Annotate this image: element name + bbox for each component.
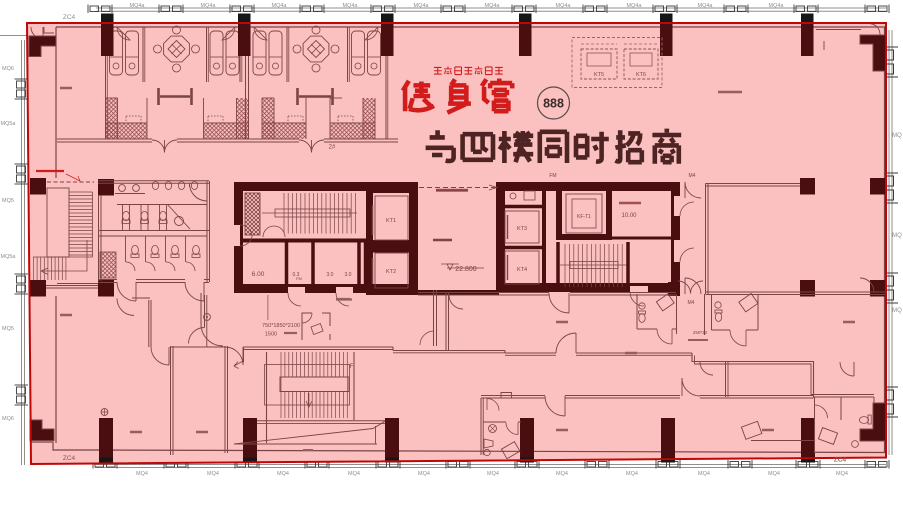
svg-text:MQ4a: MQ4a	[201, 3, 217, 9]
svg-text:MQ5a: MQ5a	[1, 254, 17, 260]
svg-text:MQ6: MQ6	[2, 66, 14, 72]
svg-text:ZC4: ZC4	[63, 455, 76, 462]
svg-text:MQ4: MQ4	[487, 471, 499, 477]
svg-text:MQ: MQ	[892, 308, 902, 314]
svg-text:MQ4: MQ4	[698, 471, 710, 477]
svg-text:3.0: 3.0	[327, 272, 334, 278]
svg-text:MQ4a: MQ4a	[272, 3, 288, 9]
svg-text:MQ4a: MQ4a	[343, 3, 359, 9]
svg-text:MQ4: MQ4	[418, 471, 430, 477]
svg-text:M4: M4	[689, 173, 696, 179]
svg-text:ZC4: ZC4	[834, 457, 847, 464]
svg-text:MQ4a: MQ4a	[556, 3, 572, 9]
svg-text:F: F	[350, 364, 354, 370]
svg-text:KT2: KT2	[386, 269, 396, 275]
svg-text:MQ4: MQ4	[207, 471, 219, 477]
svg-text:MQ4: MQ4	[348, 471, 360, 477]
svg-text:MQ5: MQ5	[2, 198, 14, 204]
svg-text:KT6: KT6	[636, 72, 646, 78]
svg-text:FM: FM	[296, 276, 302, 281]
svg-text:250*20: 250*20	[693, 330, 708, 335]
svg-text:KT1: KT1	[386, 218, 396, 224]
svg-text:MQ4: MQ4	[556, 471, 568, 477]
svg-text:MQ4: MQ4	[836, 471, 848, 477]
svg-text:3.0: 3.0	[345, 272, 352, 278]
svg-text:750*1850*2100: 750*1850*2100	[262, 323, 300, 329]
svg-text:6.00: 6.00	[252, 271, 265, 278]
svg-text:MQ4a: MQ4a	[698, 3, 714, 9]
svg-text:1500: 1500	[265, 332, 277, 338]
svg-text:KT4: KT4	[517, 267, 527, 273]
svg-text:888: 888	[543, 97, 564, 111]
svg-text:ZC4: ZC4	[63, 14, 76, 21]
svg-text:MQ4a: MQ4a	[485, 3, 501, 9]
svg-text:2#: 2#	[329, 145, 336, 151]
svg-text:FM: FM	[549, 173, 556, 179]
svg-text:MQ4a: MQ4a	[769, 3, 785, 9]
svg-text:KT5: KT5	[594, 72, 604, 78]
svg-text:MQ: MQ	[892, 233, 902, 239]
svg-text:M4: M4	[688, 300, 695, 306]
svg-text:MQ4a: MQ4a	[414, 3, 430, 9]
svg-text:MQ4: MQ4	[626, 471, 638, 477]
svg-text:MQ4: MQ4	[768, 471, 780, 477]
svg-text:MQ4a: MQ4a	[627, 3, 643, 9]
svg-text:MQ4a: MQ4a	[130, 3, 146, 9]
svg-text:MQ6: MQ6	[2, 416, 14, 422]
svg-text:KF-T1: KF-T1	[577, 214, 591, 220]
svg-text:MQ4: MQ4	[136, 471, 148, 477]
svg-text:MQ: MQ	[892, 133, 902, 139]
svg-text:22.800: 22.800	[455, 266, 477, 273]
svg-text:MQ5a: MQ5a	[1, 121, 17, 127]
svg-text:MQ4: MQ4	[277, 471, 289, 477]
svg-text:KT3: KT3	[517, 226, 527, 232]
svg-text:MQ5: MQ5	[2, 326, 14, 332]
svg-text:10.00: 10.00	[621, 213, 637, 219]
